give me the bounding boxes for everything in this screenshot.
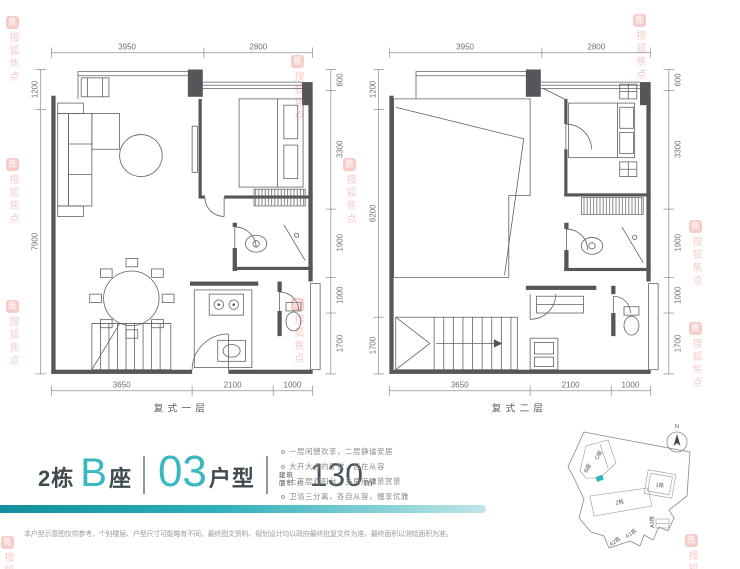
dining-table bbox=[90, 258, 174, 338]
building-a2: A2栋 bbox=[608, 534, 623, 548]
building-label: 1栋 bbox=[655, 480, 665, 489]
dim-label: 1200 bbox=[368, 80, 377, 98]
feature-item: 上下层双阳台，多角度瞰景赏景 bbox=[281, 476, 409, 487]
compass-needle-icon bbox=[674, 434, 681, 446]
building-a1: A1栋 bbox=[624, 526, 639, 540]
unit-number: 03 bbox=[158, 447, 207, 497]
floorplan-level2: 3950 2800 1200 6200 1700 600 3300 1900 1… bbox=[368, 38, 688, 418]
dim-label: 1700 bbox=[368, 336, 377, 354]
side-balcony bbox=[311, 284, 321, 370]
sohu-watermark: 焦搜狐焦点 bbox=[5, 300, 20, 368]
sohu-watermark: 焦搜狐焦点 bbox=[5, 158, 20, 226]
dim-label: 1900 bbox=[673, 233, 682, 251]
dim-label: 6200 bbox=[368, 204, 377, 222]
compass: N bbox=[667, 424, 687, 452]
bullet-icon bbox=[281, 465, 285, 469]
dim-label: 7900 bbox=[30, 232, 39, 250]
building-label: A3栋 bbox=[648, 515, 656, 528]
plan-caption: 复式二层 bbox=[492, 403, 547, 415]
dim-label: 1000 bbox=[284, 381, 302, 390]
wardrobe bbox=[254, 189, 305, 206]
toilet bbox=[280, 292, 301, 331]
side-balcony bbox=[649, 284, 659, 370]
site-boundary bbox=[568, 432, 690, 548]
kitchen bbox=[194, 290, 252, 368]
bullet-icon bbox=[281, 495, 285, 499]
plan-caption: 复式一层 bbox=[154, 403, 209, 415]
watermark-text: 搜狐焦点 bbox=[5, 174, 20, 226]
dim-label: 1700 bbox=[335, 334, 344, 352]
dim-label: 3950 bbox=[118, 43, 136, 52]
dim-label: 2800 bbox=[249, 43, 267, 52]
dim-label: 600 bbox=[335, 73, 344, 87]
dim-label: 1200 bbox=[30, 80, 39, 98]
tower-letter: B bbox=[80, 451, 107, 496]
sohu-watermark: 焦搜狐焦点 bbox=[0, 536, 15, 569]
feature-list: 一层闲憩欢享，二层静谧安居 大开大合的厅堂，自在从容 上下层双阳台，多角度瞰景赏… bbox=[281, 446, 409, 506]
bed bbox=[239, 99, 303, 187]
dim-label: 3300 bbox=[673, 140, 682, 158]
sofa bbox=[58, 103, 120, 216]
watermark-text: 搜狐焦点 bbox=[5, 32, 20, 84]
sohu-watermark: 焦搜狐焦点 bbox=[688, 322, 703, 390]
dim-label: 1000 bbox=[335, 286, 344, 304]
dim-label: 3950 bbox=[456, 43, 474, 52]
compass-north-label: N bbox=[675, 424, 679, 430]
dim-label: 1000 bbox=[622, 381, 640, 390]
watermark-text: 搜狐焦点 bbox=[5, 316, 20, 368]
bedroom-door bbox=[205, 198, 224, 217]
tower-word: 座 bbox=[109, 461, 132, 493]
sohu-logo-icon: 焦 bbox=[633, 14, 646, 27]
bullet-icon bbox=[281, 450, 285, 454]
bedroom-window bbox=[203, 82, 302, 88]
bullet-icon bbox=[281, 480, 285, 484]
toilet bbox=[613, 296, 639, 335]
building-cb: C座 B座 bbox=[580, 440, 616, 482]
building-2: 2栋 bbox=[590, 488, 652, 516]
watermark-text: 搜狐焦点 bbox=[688, 338, 703, 390]
stairs bbox=[396, 317, 518, 369]
dim-label: 3300 bbox=[335, 140, 344, 158]
sohu-watermark: 焦搜狐焦点 bbox=[688, 220, 703, 288]
watermark-text: 搜狐焦点 bbox=[688, 236, 703, 288]
building-label: B座 bbox=[582, 462, 594, 474]
walls-level1 bbox=[51, 69, 312, 373]
dimensions-level1: 3950 2800 1200 7900 600 3300 1900 1000 1… bbox=[30, 43, 344, 396]
sohu-logo-icon: 焦 bbox=[689, 322, 702, 335]
bedroom-door bbox=[566, 124, 592, 149]
balcony-top bbox=[78, 72, 188, 99]
siteplan: C座 B座 1栋 2栋 A1栋 A2栋 A3栋 N bbox=[556, 416, 740, 569]
dim-label: 3650 bbox=[113, 381, 131, 390]
sohu-logo-icon: 焦 bbox=[6, 16, 19, 29]
title-divider bbox=[266, 456, 268, 494]
watermark-text: 搜狐焦点 bbox=[0, 552, 15, 569]
dim-label: 2800 bbox=[587, 43, 605, 52]
floorplan-level1: 3950 2800 1200 7900 600 3300 1900 1000 1… bbox=[30, 38, 350, 418]
building-a3: A3栋 bbox=[648, 515, 669, 528]
dim-label: 600 bbox=[673, 73, 682, 87]
sohu-logo-icon: 焦 bbox=[6, 158, 19, 171]
sohu-logo-icon: 焦 bbox=[689, 220, 702, 233]
building-1: 1栋 bbox=[644, 470, 676, 498]
block-number: 2栋 bbox=[38, 461, 74, 493]
bathroom bbox=[566, 227, 643, 263]
dim-label: 2100 bbox=[562, 381, 580, 390]
disclaimer-text: 本户型示意图仅供参考，个别楼层、户型尺寸可能略有不同，最终图文资料、规划设计均以… bbox=[24, 529, 452, 539]
study-room bbox=[530, 294, 583, 370]
dimensions-level2: 3950 2800 1200 6200 1700 600 3300 1900 1… bbox=[368, 43, 682, 396]
feature-text: 大开大合的厅堂，自在从容 bbox=[289, 461, 385, 472]
tv-cabinet bbox=[192, 126, 197, 172]
unit-word: 户型 bbox=[209, 461, 255, 493]
dim-label: 1900 bbox=[335, 233, 344, 251]
rug bbox=[120, 135, 163, 177]
accent-bar bbox=[0, 505, 486, 513]
bathroom bbox=[235, 225, 305, 261]
sohu-logo-icon: 焦 bbox=[6, 300, 19, 313]
building-label: A1栋 bbox=[624, 526, 639, 540]
dim-label: 3650 bbox=[451, 381, 469, 390]
stairs bbox=[92, 324, 171, 370]
feature-item: 卫浴三分离，各自从容，慢享优雅 bbox=[281, 491, 409, 502]
dim-label: 2100 bbox=[224, 381, 242, 390]
wardrobe bbox=[581, 198, 643, 215]
building-label: A2栋 bbox=[608, 534, 623, 548]
floorplan-flyer: 焦搜狐焦点 焦搜狐焦点 焦搜狐焦点 焦搜狐焦点 焦搜狐焦点 焦搜狐焦点 焦搜狐焦… bbox=[0, 0, 740, 569]
building-label: 2栋 bbox=[615, 497, 625, 506]
double-height-void bbox=[394, 99, 531, 277]
feature-text: 上下层双阳台，多角度瞰景赏景 bbox=[289, 476, 401, 487]
dim-label: 1000 bbox=[673, 286, 682, 304]
dim-label: 1700 bbox=[673, 334, 682, 352]
feature-text: 卫浴三分离，各自从容，慢享优雅 bbox=[289, 491, 409, 502]
title-divider bbox=[143, 456, 145, 494]
sohu-watermark: 焦搜狐焦点 bbox=[5, 16, 20, 84]
feature-item: 大开大合的厅堂，自在从容 bbox=[281, 461, 409, 472]
sohu-logo-icon: 焦 bbox=[1, 536, 14, 549]
feature-text: 一层闲憩欢享，二层静谧安居 bbox=[289, 446, 393, 457]
bed bbox=[569, 84, 637, 176]
feature-item: 一层闲憩欢享，二层静谧安居 bbox=[281, 446, 409, 457]
